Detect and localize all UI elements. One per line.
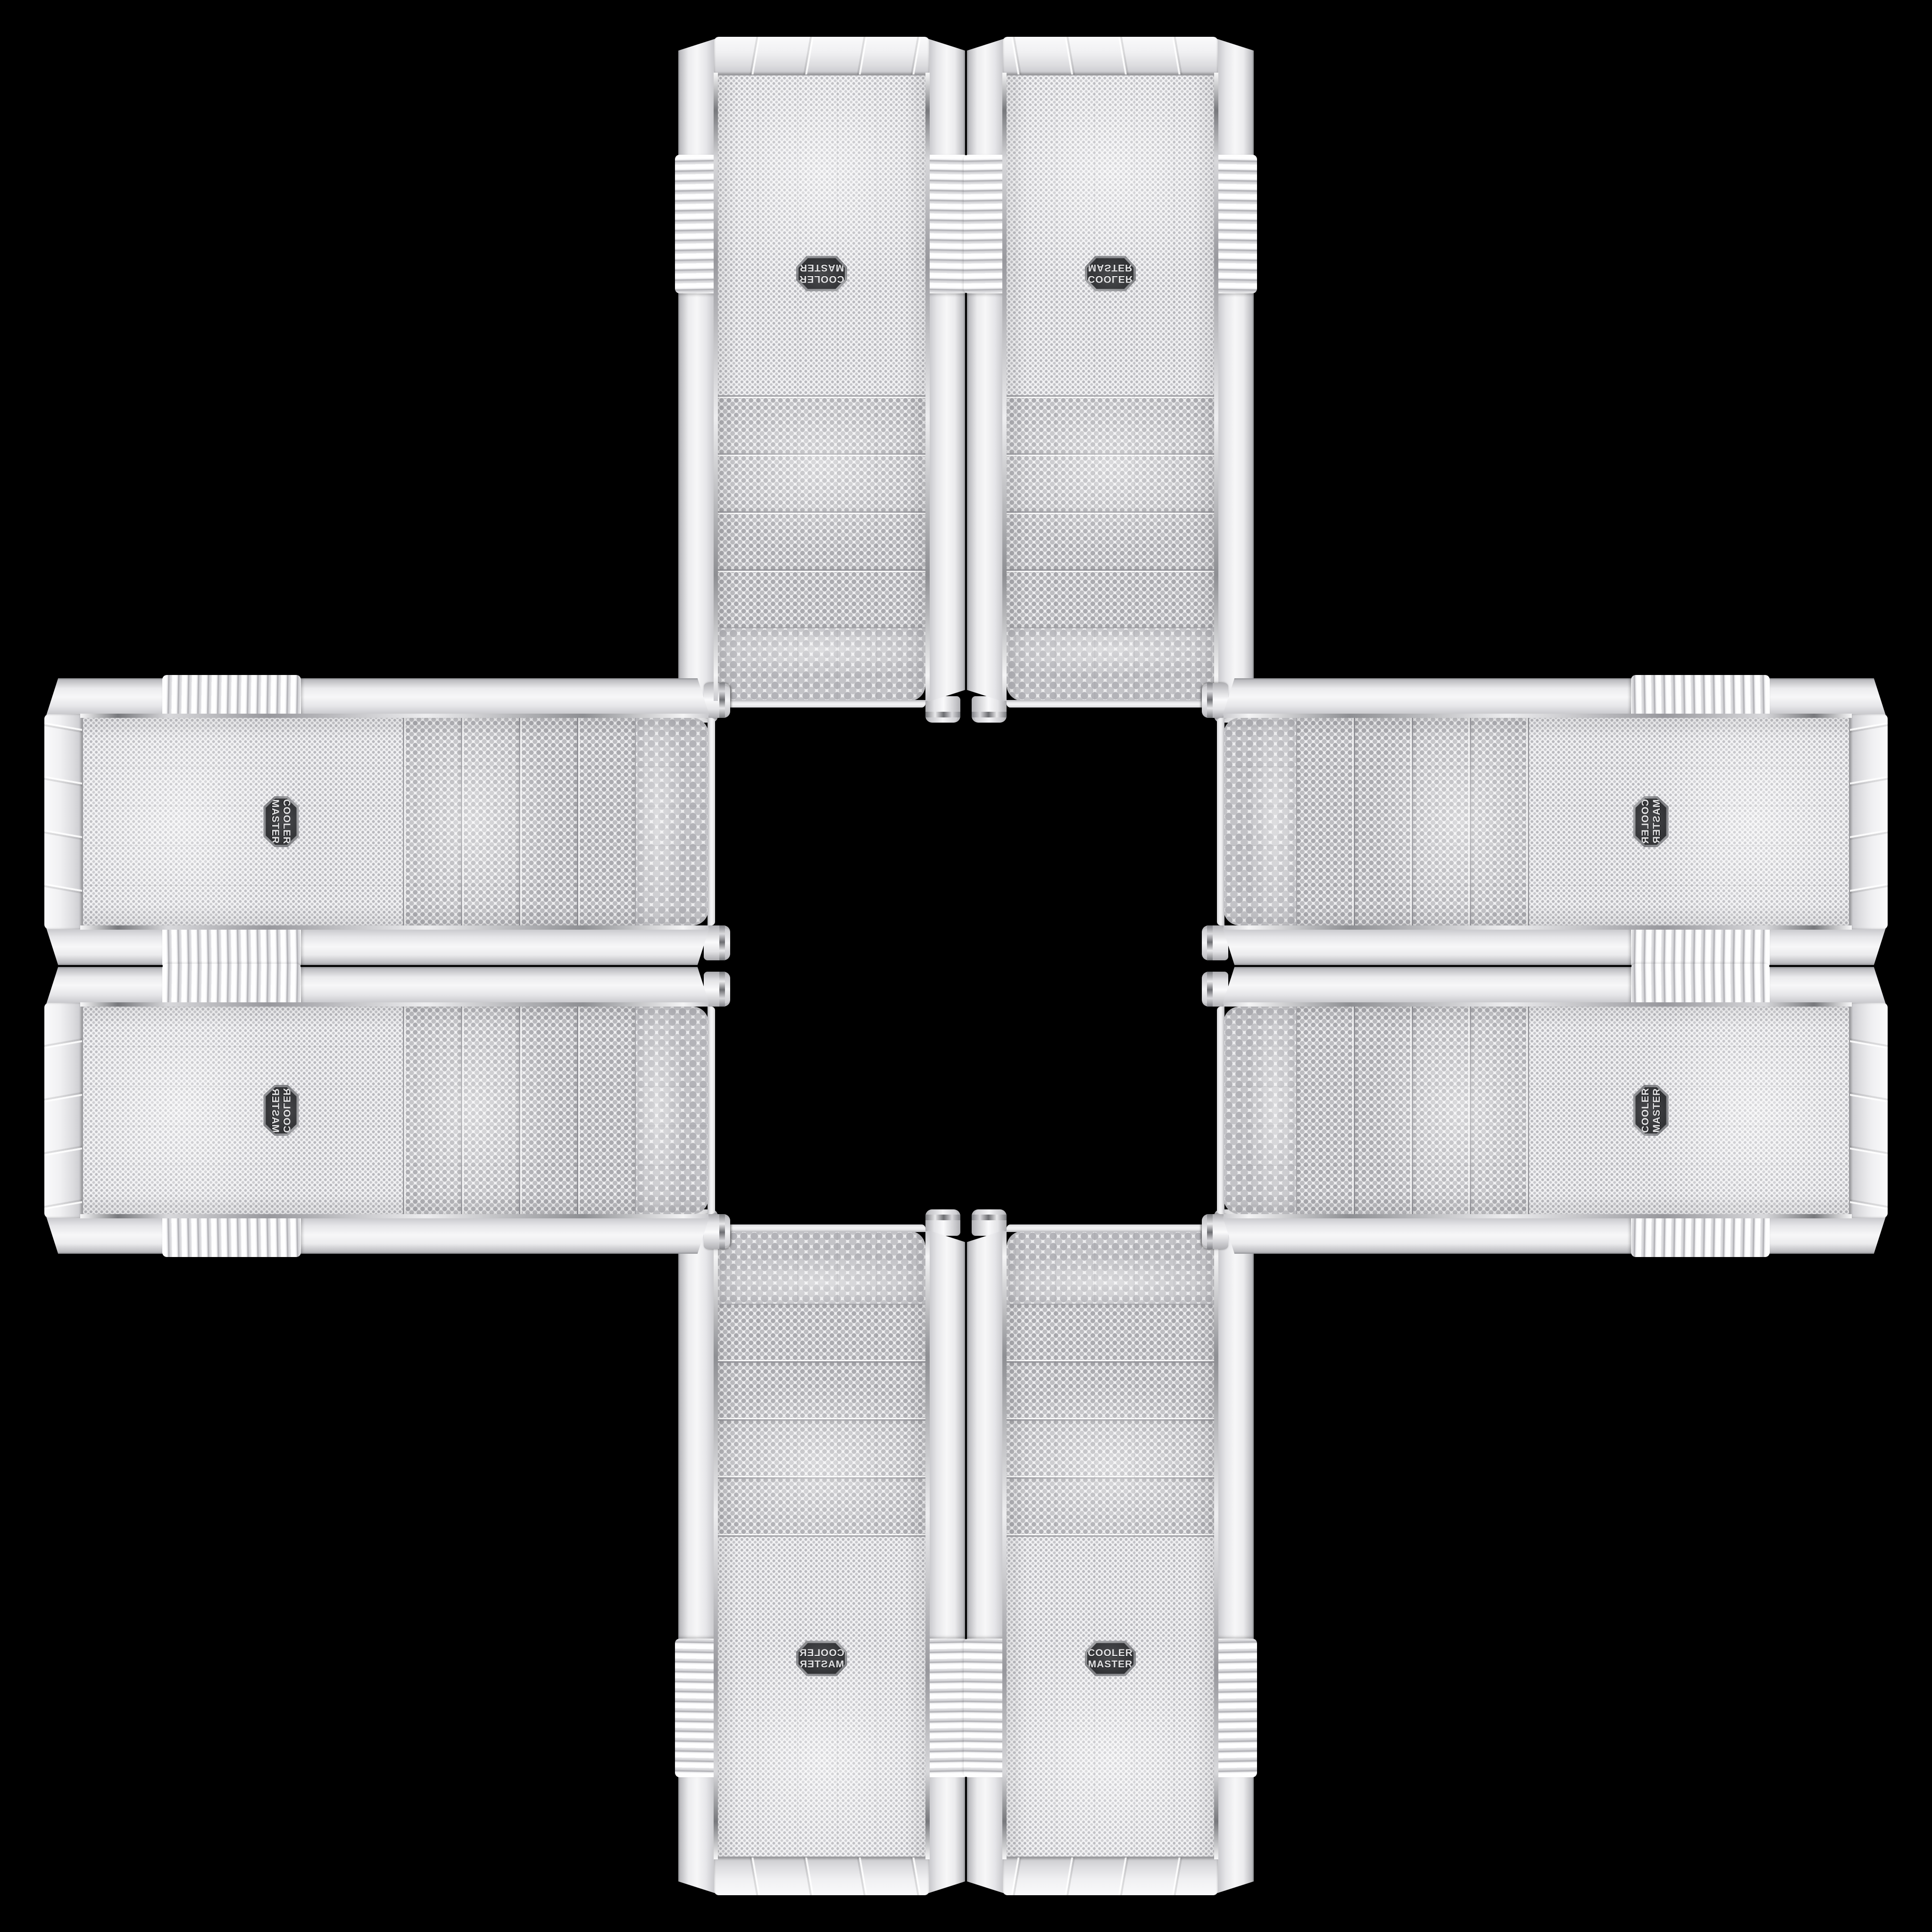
drive-bay-strip xyxy=(1007,453,1214,511)
front-mesh-panel: COOLER MASTER xyxy=(1007,75,1214,396)
grip-ribs-left xyxy=(1212,1639,1257,1777)
front-mesh-panel: COOLER MASTER xyxy=(1528,718,1850,925)
bottom-cap xyxy=(1007,700,1214,708)
side-rail-left xyxy=(678,1227,717,1896)
case-front-bezel: COOLER MASTER xyxy=(967,1224,1254,1899)
sidecase-left-bottom: COOLER MASTER xyxy=(41,967,715,1254)
side-rail-left xyxy=(1220,967,1889,1006)
grip-ribs-right xyxy=(162,1212,301,1257)
case-front-bezel: COOLER MASTER xyxy=(967,33,1254,708)
side-rail-right xyxy=(43,1215,712,1254)
front-mesh-panel: COOLER MASTER xyxy=(1007,1536,1214,1857)
cooler-master-badge: COOLER MASTER xyxy=(263,796,300,847)
badge-face: COOLER MASTER xyxy=(265,799,297,845)
intake-mesh xyxy=(718,1231,925,1305)
badge-face: COOLER MASTER xyxy=(1635,799,1667,845)
chrome-trim-left xyxy=(1214,73,1218,701)
intake-mesh xyxy=(1007,627,1214,701)
drive-bay-strip xyxy=(1471,718,1529,925)
drive-bay-strip xyxy=(461,1007,519,1214)
chrome-trim-left xyxy=(714,73,718,701)
top-cap xyxy=(1850,714,1888,929)
case-front-bezel: COOLER MASTER xyxy=(678,1224,965,1899)
drive-bay-strip xyxy=(718,395,925,453)
grip-ribs-left xyxy=(1631,923,1770,968)
side-rail-right xyxy=(1220,678,1889,717)
top-cap xyxy=(1003,37,1218,75)
tower-top-right: COOLER MASTER xyxy=(967,33,1254,708)
case-front-bezel: COOLER MASTER xyxy=(41,967,715,1254)
drive-bay-covers xyxy=(718,395,925,627)
chrome-trim-left xyxy=(1214,1231,1218,1859)
top-cap xyxy=(714,1857,929,1895)
top-cap xyxy=(714,37,929,75)
badge-brand-line2: MASTER xyxy=(1651,799,1662,844)
cooler-master-badge: COOLER MASTER xyxy=(1085,1640,1136,1677)
grip-ribs-left xyxy=(162,923,301,968)
intake-mesh xyxy=(1007,1231,1214,1305)
case-front-bezel: COOLER MASTER xyxy=(41,678,715,965)
drive-bay-strip xyxy=(1297,718,1355,925)
badge-brand-line2: MASTER xyxy=(1088,1659,1133,1670)
drive-bay-strip xyxy=(718,1305,925,1363)
side-rail-right xyxy=(1220,1215,1889,1254)
drive-bay-strip xyxy=(519,1007,577,1214)
drive-bay-covers xyxy=(403,718,635,925)
badge-brand-line2: MASTER xyxy=(270,799,281,844)
drive-bay-strip xyxy=(577,718,635,925)
side-rail-left xyxy=(1215,1227,1254,1896)
badge-brand-line1: COOLER xyxy=(1640,799,1651,844)
grip-ribs-right xyxy=(1631,1212,1770,1257)
cooler-master-badge: COOLER MASTER xyxy=(1632,1085,1669,1136)
bottom-cap xyxy=(718,700,925,708)
side-rail-left xyxy=(1215,36,1254,705)
side-rail-right xyxy=(43,678,712,717)
tower-top-left: COOLER MASTER xyxy=(678,33,965,708)
drive-bay-covers xyxy=(1007,1305,1214,1537)
tower-bottom-left: COOLER MASTER xyxy=(678,1224,965,1899)
collage-scene: COOLER MASTER xyxy=(0,0,1932,1932)
case-front-bezel: COOLER MASTER xyxy=(678,33,965,708)
cooler-master-badge: COOLER MASTER xyxy=(1632,796,1669,847)
badge-face: COOLER MASTER xyxy=(1635,1087,1667,1133)
chrome-trim-left xyxy=(80,1002,708,1007)
chrome-trim-right xyxy=(1224,1214,1852,1218)
chrome-trim-right xyxy=(925,1231,930,1859)
drive-bay-strip xyxy=(718,1421,925,1479)
badge-brand-line2: MASTER xyxy=(799,263,844,274)
drive-bay-strip xyxy=(519,718,577,925)
front-mesh-panel: COOLER MASTER xyxy=(718,75,925,396)
bottom-cap xyxy=(708,718,715,925)
drive-bay-strip xyxy=(1471,1007,1529,1214)
chrome-trim-right xyxy=(1002,73,1007,701)
bottom-cap xyxy=(1217,1007,1224,1214)
intake-mesh xyxy=(718,627,925,701)
badge-brand-line1: COOLER xyxy=(1088,1648,1133,1658)
drive-bay-strip xyxy=(1007,395,1214,453)
bottom-cap xyxy=(1217,718,1224,925)
drive-bay-strip xyxy=(718,1363,925,1421)
intake-mesh xyxy=(635,1007,708,1214)
drive-bay-strip xyxy=(718,453,925,511)
drive-bay-covers xyxy=(1007,395,1214,627)
grip-ribs-left xyxy=(1212,155,1257,293)
cooler-master-badge: COOLER MASTER xyxy=(263,1085,300,1136)
tower-bottom-right: COOLER MASTER xyxy=(967,1224,1254,1899)
top-cap xyxy=(1850,1003,1888,1218)
sidecase-right-bottom: COOLER MASTER xyxy=(1217,967,1891,1254)
drive-bay-covers xyxy=(403,1007,635,1214)
grip-ribs-right xyxy=(923,1639,968,1777)
drive-bay-covers xyxy=(1297,718,1529,925)
chrome-trim-right xyxy=(1224,714,1852,718)
drive-bay-strip xyxy=(403,1007,461,1214)
badge-face: COOLER MASTER xyxy=(799,1642,845,1674)
chrome-trim-left xyxy=(1224,1002,1852,1007)
badge-face: COOLER MASTER xyxy=(799,258,845,290)
intake-mesh xyxy=(1224,1007,1297,1214)
chrome-trim-left xyxy=(80,925,708,930)
cooler-master-badge: COOLER MASTER xyxy=(1085,255,1136,292)
front-mesh-panel: COOLER MASTER xyxy=(718,1536,925,1857)
badge-brand-line1: COOLER xyxy=(1640,1088,1651,1133)
chrome-trim-left xyxy=(714,1231,718,1859)
badge-brand-line1: COOLER xyxy=(799,1648,844,1658)
drive-bay-strip xyxy=(1007,1305,1214,1363)
chrome-trim-right xyxy=(80,714,708,718)
intake-mesh xyxy=(1224,718,1297,925)
grip-ribs-right xyxy=(923,155,968,293)
badge-brand-line2: MASTER xyxy=(270,1088,281,1133)
badge-face: COOLER MASTER xyxy=(265,1087,297,1133)
drive-bay-strip xyxy=(577,1007,635,1214)
drive-bay-strip xyxy=(1007,1421,1214,1479)
side-rail-right xyxy=(967,1227,1006,1896)
side-rail-right xyxy=(967,36,1006,705)
sidecase-left-top: COOLER MASTER xyxy=(41,678,715,965)
side-rail-left xyxy=(1220,926,1889,965)
side-rail-left xyxy=(43,926,712,965)
chrome-trim-left xyxy=(1224,925,1852,930)
drive-bay-strip xyxy=(1007,1363,1214,1421)
drive-bay-strip xyxy=(718,569,925,627)
drive-bay-strip xyxy=(1413,1007,1471,1214)
drive-bay-covers xyxy=(1297,1007,1529,1214)
cooler-master-badge: COOLER MASTER xyxy=(796,1640,847,1677)
drive-bay-strip xyxy=(1007,1479,1214,1537)
drive-bay-strip xyxy=(1355,718,1413,925)
side-rail-right xyxy=(926,36,965,705)
bottom-cap xyxy=(718,1224,925,1232)
front-mesh-panel: COOLER MASTER xyxy=(82,718,404,925)
chrome-trim-right xyxy=(80,1214,708,1218)
drive-bay-strip xyxy=(718,1479,925,1537)
top-cap xyxy=(44,714,82,929)
side-rail-right xyxy=(926,1227,965,1896)
side-rail-left xyxy=(43,967,712,1006)
top-cap xyxy=(44,1003,82,1218)
drive-bay-strip xyxy=(718,511,925,569)
badge-face: COOLER MASTER xyxy=(1087,258,1133,290)
badge-brand-line2: MASTER xyxy=(1651,1088,1662,1133)
sidecase-right-top: COOLER MASTER xyxy=(1217,678,1891,965)
bottom-cap xyxy=(1007,1224,1214,1232)
drive-bay-strip xyxy=(1413,718,1471,925)
drive-bay-strip xyxy=(1297,1007,1355,1214)
drive-bay-strip xyxy=(461,718,519,925)
drive-bay-strip xyxy=(1007,569,1214,627)
front-mesh-panel: COOLER MASTER xyxy=(1528,1007,1850,1214)
drive-bay-covers xyxy=(718,1305,925,1537)
drive-bay-strip xyxy=(403,718,461,925)
badge-brand-line1: COOLER xyxy=(282,1088,292,1133)
top-cap xyxy=(1003,1857,1218,1895)
intake-mesh xyxy=(635,718,708,925)
front-mesh-panel: COOLER MASTER xyxy=(82,1007,404,1214)
badge-brand-line1: COOLER xyxy=(1088,274,1133,285)
drive-bay-strip xyxy=(1355,1007,1413,1214)
badge-brand-line2: MASTER xyxy=(799,1659,844,1670)
bottom-cap xyxy=(708,1007,715,1214)
badge-brand-line2: MASTER xyxy=(1088,263,1133,274)
badge-face: COOLER MASTER xyxy=(1087,1642,1133,1674)
chrome-trim-right xyxy=(1002,1231,1007,1859)
side-rail-left xyxy=(678,36,717,705)
case-front-bezel: COOLER MASTER xyxy=(1217,967,1891,1254)
case-front-bezel: COOLER MASTER xyxy=(1217,678,1891,965)
badge-brand-line1: COOLER xyxy=(282,799,292,844)
drive-bay-strip xyxy=(1007,511,1214,569)
chrome-trim-right xyxy=(925,73,930,701)
badge-brand-line1: COOLER xyxy=(799,274,844,285)
cooler-master-badge: COOLER MASTER xyxy=(796,255,847,292)
